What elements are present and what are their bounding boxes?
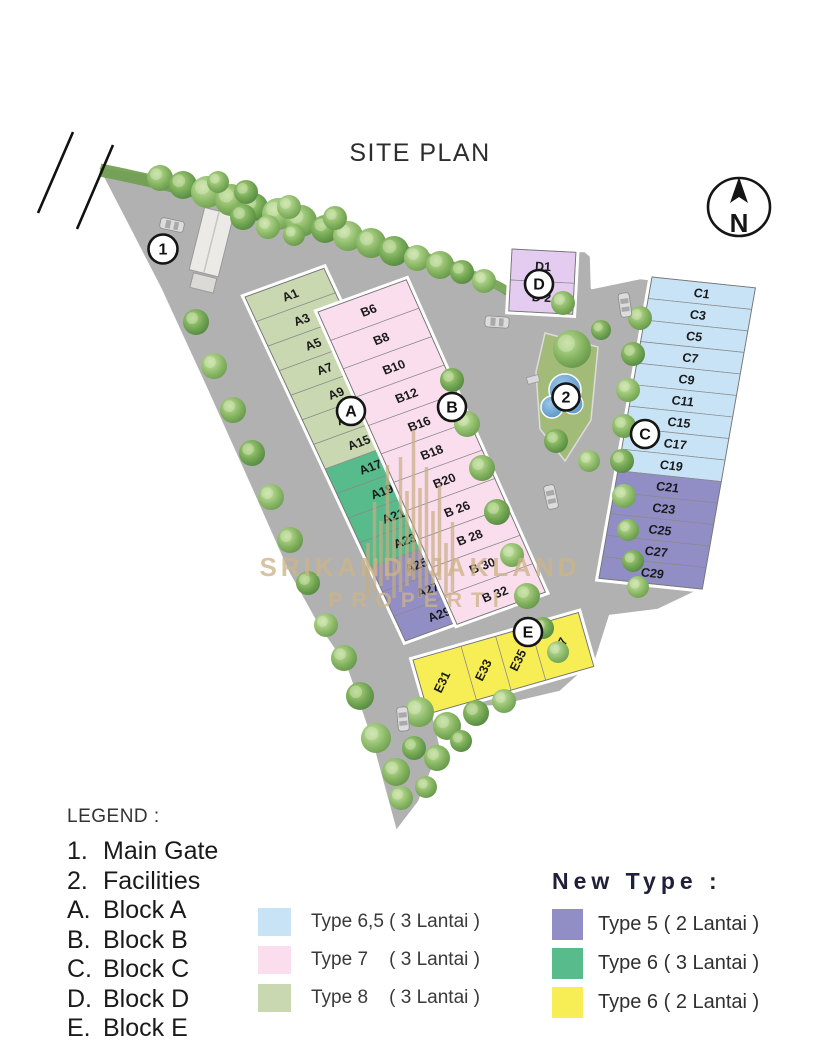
legend-item-label: Block C xyxy=(103,955,189,985)
legend-item-label: Block B xyxy=(103,926,188,956)
lot-label: C17 xyxy=(663,436,688,452)
legend-item-label: Main Gate xyxy=(103,837,218,867)
new-type-legend-item: Type 6 ( 3 Lantai ) xyxy=(552,948,759,979)
new-type-items: Type 5 ( 2 Lantai )Type 6 ( 3 Lantai )Ty… xyxy=(552,909,759,1018)
lot-label: C21 xyxy=(655,479,680,495)
svg-text:1: 1 xyxy=(159,242,168,259)
car-icon xyxy=(396,707,409,732)
offsite-road-line xyxy=(38,132,73,213)
lot-label: C23 xyxy=(651,501,676,517)
marker-B: B xyxy=(438,393,466,421)
legend-items: 1.Main Gate2.FacilitiesA.Block AB.Block … xyxy=(67,837,218,1044)
marker-E: E xyxy=(514,618,542,646)
watermark-line2: PROPERTI xyxy=(328,589,507,612)
site-plan-canvas: SITE PLAN A1A3A5A7A9A11A15A17A19A21A23A2… xyxy=(0,0,840,1057)
lot-label: C27 xyxy=(644,544,669,560)
lot-label: C7 xyxy=(681,351,699,366)
lot-label: C5 xyxy=(685,329,703,344)
color-swatch xyxy=(552,987,583,1018)
svg-text:2: 2 xyxy=(562,390,571,407)
type-legend-item: Type 6,5 ( 3 Lantai ) xyxy=(258,908,480,936)
marker-C: C xyxy=(631,420,659,448)
new-type-legend: New Type : Type 5 ( 2 Lantai )Type 6 ( 3… xyxy=(552,868,759,1026)
type-legend-label: Type 8 ( 3 Lantai ) xyxy=(311,987,480,1009)
legend-item-label: Block E xyxy=(103,1014,188,1044)
svg-text:B: B xyxy=(446,400,458,417)
legend-item-key: 1. xyxy=(67,837,103,867)
lot-label: C9 xyxy=(677,372,695,387)
legend-item-key: C. xyxy=(67,955,103,985)
svg-text:C: C xyxy=(639,427,651,444)
legend: LEGEND : 1.Main Gate2.FacilitiesA.Block … xyxy=(67,806,218,1044)
marker-facilities: 2 xyxy=(553,384,580,411)
svg-text:A: A xyxy=(345,404,357,421)
legend-item-key: B. xyxy=(67,926,103,956)
car-icon xyxy=(485,316,510,329)
lot-label: C19 xyxy=(659,458,684,474)
new-type-legend-item: Type 5 ( 2 Lantai ) xyxy=(552,909,759,940)
legend-item: D.Block D xyxy=(67,985,218,1015)
watermark-line1: SRIKANDI JAKLAND xyxy=(259,552,580,582)
legend-item: A.Block A xyxy=(67,896,218,926)
type-legend-item: Type 8 ( 3 Lantai ) xyxy=(258,984,480,1012)
color-swatch xyxy=(258,984,291,1012)
legend-item-label: Block A xyxy=(103,896,186,926)
type-legend-label: Type 6,5 ( 3 Lantai ) xyxy=(311,911,480,933)
lot-label: C11 xyxy=(670,393,695,409)
marker-A: A xyxy=(337,397,365,425)
lot-label: C15 xyxy=(666,415,691,431)
color-swatch xyxy=(258,946,291,974)
new-type-legend-label: Type 6 ( 3 Lantai ) xyxy=(598,952,759,975)
type-legend-label: Type 7 ( 3 Lantai ) xyxy=(311,949,480,971)
color-swatch xyxy=(552,909,583,940)
new-type-legend-label: Type 6 ( 2 Lantai ) xyxy=(598,991,759,1014)
type-legend: Type 6,5 ( 3 Lantai )Type 7 ( 3 Lantai )… xyxy=(258,908,480,1022)
legend-item-key: 2. xyxy=(67,867,103,897)
lot-label: C25 xyxy=(647,522,672,538)
marker-D: D xyxy=(525,270,553,298)
legend-item: 2.Facilities xyxy=(67,867,218,897)
marker-gate: 1 xyxy=(149,235,178,264)
legend-item: E.Block E xyxy=(67,1014,218,1044)
legend-item-key: A. xyxy=(67,896,103,926)
legend-item-label: Block D xyxy=(103,985,189,1015)
legend-item-key: E. xyxy=(67,1014,103,1044)
lot-label: C1 xyxy=(693,286,711,301)
color-swatch xyxy=(552,948,583,979)
color-swatch xyxy=(258,908,291,936)
type-legend-item: Type 7 ( 3 Lantai ) xyxy=(258,946,480,974)
lot-label: C3 xyxy=(689,307,707,322)
compass-letter: N xyxy=(730,208,749,238)
new-type-legend-item: Type 6 ( 2 Lantai ) xyxy=(552,987,759,1018)
legend-item: 1.Main Gate xyxy=(67,837,218,867)
svg-text:D: D xyxy=(533,277,545,294)
svg-text:E: E xyxy=(523,625,534,642)
north-compass: N xyxy=(708,177,770,238)
legend-item: B.Block B xyxy=(67,926,218,956)
legend-item-label: Facilities xyxy=(103,867,200,897)
legend-item-key: D. xyxy=(67,985,103,1015)
new-type-title: New Type : xyxy=(552,868,759,895)
legend-item: C.Block C xyxy=(67,955,218,985)
legend-title: LEGEND : xyxy=(67,806,218,828)
new-type-legend-label: Type 5 ( 2 Lantai ) xyxy=(598,913,759,936)
